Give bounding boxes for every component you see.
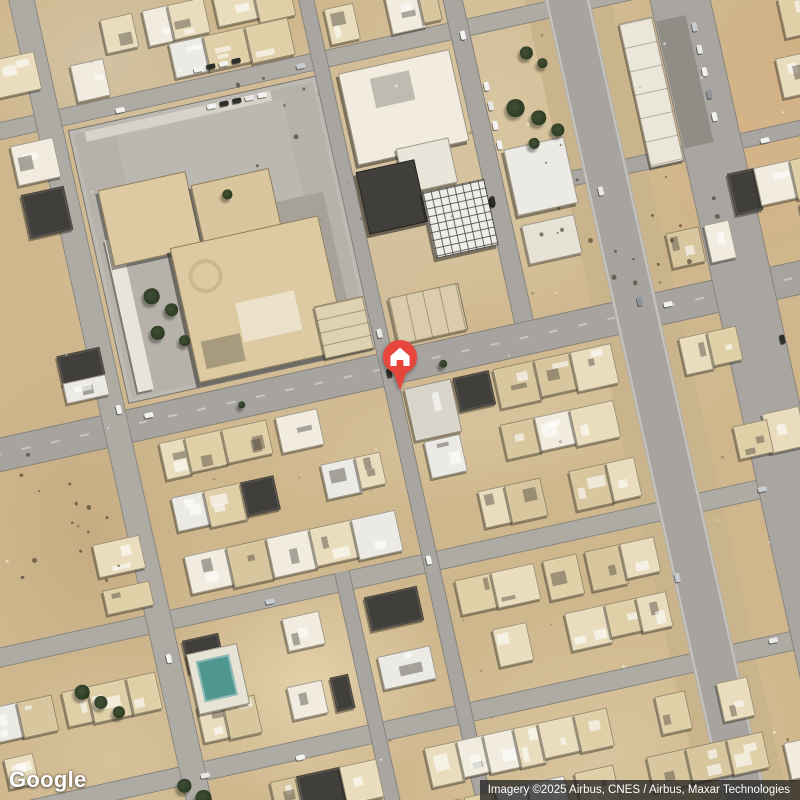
roof-structure [283, 789, 296, 800]
roof-structure [94, 74, 104, 81]
google-logo[interactable]: Google [9, 767, 87, 793]
roof-structure [328, 467, 347, 484]
roof-structure [588, 719, 601, 731]
roof-structure [448, 451, 461, 465]
roof-structure [187, 44, 203, 51]
roof-structure [333, 25, 342, 38]
sand-speckle [491, 716, 494, 719]
roof-structure [593, 628, 607, 641]
roof-structure [374, 540, 387, 550]
roof-structure [24, 705, 32, 711]
roof-structure [1, 65, 17, 77]
shrub [556, 231, 559, 234]
roof-structure [234, 2, 250, 14]
roof-structure [743, 742, 758, 752]
sand-speckle [65, 354, 68, 357]
sand-speckle [77, 525, 80, 528]
roof-structure [80, 701, 88, 713]
attribution-text: Imagery ©2025 Airbus, CNES / Airbus, Max… [488, 784, 790, 796]
roof-structure [133, 698, 145, 709]
roof-structure [516, 371, 529, 382]
roof-structure [118, 32, 133, 46]
roof-structure [184, 28, 195, 35]
shrub [105, 579, 108, 582]
roof-structure [635, 560, 650, 572]
roof-structure [297, 425, 313, 433]
roof-structure [0, 713, 8, 726]
villa [339, 759, 385, 800]
sand-speckle [213, 477, 216, 480]
roof-structure [546, 368, 560, 381]
roof-structure [433, 754, 450, 772]
sand-speckle [6, 560, 9, 563]
roof-structure [655, 610, 667, 624]
roof-structure [289, 548, 300, 565]
shrub [539, 232, 543, 236]
roof-structure [404, 653, 412, 659]
roof-structure [470, 753, 483, 769]
roof-structure [201, 558, 214, 572]
roof-structure [685, 245, 696, 256]
villa [542, 554, 585, 601]
roof-structure [706, 763, 722, 776]
roof-structure [173, 459, 187, 472]
villa [619, 536, 661, 579]
sand-speckle [428, 668, 431, 671]
tree [237, 400, 245, 408]
attribution-bar: Imagery ©2025 Airbus, CNES / Airbus, Max… [480, 780, 800, 800]
roof-structure [521, 747, 530, 762]
villa [490, 563, 541, 609]
roof-structure [205, 571, 220, 583]
roof-structure [792, 63, 800, 80]
roof-structure [725, 344, 733, 350]
roof-structure [297, 626, 309, 638]
sand-speckle [526, 122, 529, 125]
roof-structure [436, 441, 449, 448]
roof-structure [716, 231, 726, 245]
sand-speckle [256, 457, 257, 458]
roof-structure [217, 53, 228, 59]
roof-structure [618, 479, 629, 489]
roof-structure [255, 48, 276, 59]
sand-speckle [550, 623, 552, 625]
roof-structure [777, 423, 788, 436]
shrub [26, 452, 30, 456]
villa [240, 475, 281, 517]
roof-structure [522, 487, 538, 502]
sand-speckle [259, 731, 261, 733]
sand-speckle [622, 665, 625, 668]
roof-structure [213, 726, 224, 735]
roof-structure [577, 487, 586, 500]
swimming-pool [196, 654, 238, 702]
roof-structure [587, 475, 607, 490]
villa [424, 434, 468, 479]
roof-structure [18, 155, 34, 172]
sand-speckle [559, 440, 562, 443]
roof-structure [608, 564, 617, 576]
roof-structure [587, 358, 595, 366]
roof-structure [431, 392, 442, 412]
villa [21, 185, 74, 239]
roof-structure [162, 27, 171, 35]
satellite-map-canvas[interactable]: Google Imagery ©2025 Airbus, CNES / Airb… [0, 0, 800, 800]
roof-structure [574, 635, 587, 645]
sand-speckle [389, 739, 392, 742]
roof-structure [560, 737, 567, 746]
shrub [79, 550, 82, 553]
shrub [74, 502, 78, 506]
shrub [255, 164, 259, 168]
roof-structure [321, 536, 329, 549]
roof-structure [734, 752, 752, 768]
roof-structure [247, 554, 254, 561]
sand-speckle [721, 456, 724, 459]
sand-speckle [462, 619, 464, 621]
roof-structure [15, 58, 30, 68]
roof-structure [112, 562, 130, 571]
roof-structure [0, 730, 8, 737]
roof-structure [201, 454, 213, 466]
roof-structure [332, 545, 351, 559]
roof-structure [502, 594, 516, 601]
roof-structure [772, 170, 790, 180]
satellite-imagery-layer [0, 0, 800, 800]
sand-speckle [540, 33, 543, 36]
roof-structure [745, 448, 756, 455]
roof-structure [590, 348, 603, 357]
roof-structure [111, 592, 121, 599]
roof-structure [215, 45, 231, 53]
roof-structure [496, 632, 510, 645]
roof-structure [698, 342, 707, 357]
villa [504, 478, 549, 524]
roof-structure [510, 382, 527, 391]
sand-speckle [663, 42, 666, 45]
roof-structure [580, 424, 591, 437]
shrub [235, 82, 240, 87]
shrub [293, 134, 299, 140]
roof-structure [482, 578, 490, 591]
roof-structure [755, 435, 765, 444]
roof-structure [299, 693, 309, 706]
villa [17, 694, 60, 738]
roof-structure [514, 434, 524, 442]
roof-structure [794, 0, 800, 13]
roof-structure [501, 747, 518, 762]
roof-structure [366, 468, 375, 477]
roof-structure [663, 714, 672, 725]
shrub [283, 104, 286, 107]
place-marker-icon[interactable] [378, 338, 422, 394]
shrub [20, 575, 24, 579]
shrub [611, 275, 616, 280]
roof-structure [209, 493, 228, 507]
roof-structure [550, 570, 567, 586]
shrub [86, 505, 91, 510]
roof-structure [399, 662, 423, 677]
roof-structure [120, 544, 132, 557]
sand-speckle [712, 112, 714, 114]
sand-speckle [531, 291, 535, 295]
roof-structure [707, 749, 718, 760]
roof-structure [528, 727, 539, 740]
roof-structure [402, 10, 416, 19]
villa [727, 732, 771, 776]
roof-structure [627, 612, 638, 621]
roof-structure [352, 776, 364, 788]
roof-structure [183, 498, 195, 510]
roof-structure [484, 494, 495, 506]
